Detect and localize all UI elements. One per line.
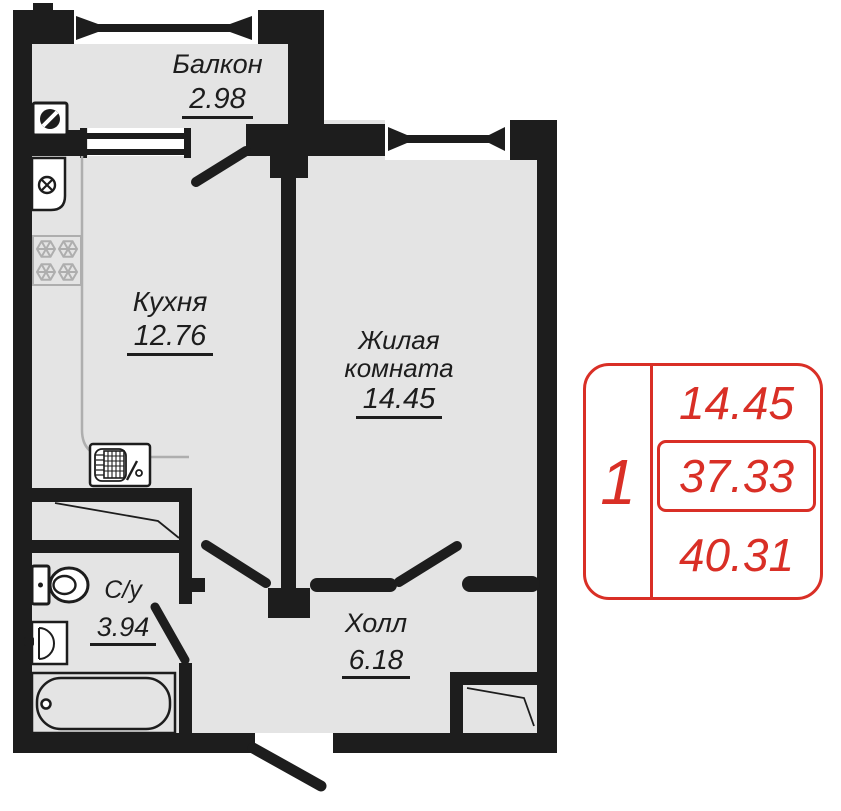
living-room-area-value: 14.45	[320, 384, 478, 419]
wall-balcony-top-left	[13, 10, 74, 44]
wall-kitchen-living-divider	[281, 176, 296, 592]
stamp-room-count: 1	[586, 366, 653, 597]
bathroom-area-value: 3.94	[84, 613, 162, 646]
living-room-area-text: 14.45	[356, 384, 443, 419]
kitchen-area-text: 12.76	[127, 321, 214, 356]
wall-right-outer	[537, 120, 557, 753]
hall-area-text: 6.18	[342, 645, 411, 679]
floor-plan-canvas: Балкон 2.98 Кухня 12.76 Жилая комната 14…	[0, 0, 841, 811]
washing-machine-icon	[33, 103, 67, 135]
wall-corner-closet-top	[450, 672, 537, 685]
wall-closet-bottom	[13, 540, 192, 553]
balcony-area-text: 2.98	[182, 84, 252, 119]
balcony-area-value: 2.98	[140, 84, 295, 119]
wall-bathroom-right-lower	[179, 663, 192, 737]
living-room-label: Жилая комната	[320, 327, 478, 382]
wall-divider-top-block	[270, 156, 308, 178]
bathroom-label: С/у	[92, 577, 154, 604]
entrance-door-icon	[253, 748, 321, 786]
kitchen-hob-sink-icon	[32, 158, 65, 210]
hall-label: Холл	[312, 609, 440, 638]
wall-closet-top	[13, 488, 192, 502]
wall-hall-top-right-seg	[462, 576, 540, 592]
area-stamp: 1 14.45 37.33 40.31	[583, 363, 823, 600]
stamp-total-area: 40.31	[653, 512, 820, 597]
stamp-areas: 14.45 37.33 40.31	[653, 366, 820, 597]
wall-bottom-right	[333, 733, 557, 753]
kitchen-sink-unit-icon	[90, 444, 150, 486]
wall-kitchen-door-stub	[192, 578, 205, 592]
kitchen-area-value: 12.76	[95, 321, 245, 356]
wall-top-left-bump	[33, 3, 53, 11]
wall-balcony-kitchen-right	[246, 124, 385, 156]
balcony-label: Балкон	[140, 50, 295, 79]
hall-area-value: 6.18	[312, 645, 440, 679]
wall-bottom-left	[13, 733, 255, 753]
stamp-area-without-balcony: 37.33	[657, 440, 816, 512]
stamp-living-area: 14.45	[653, 366, 820, 440]
kitchen-label: Кухня	[95, 287, 245, 317]
wall-divider-bottom-block	[268, 588, 310, 618]
wall-hall-top-left-seg	[310, 578, 397, 592]
toilet-icon	[32, 566, 88, 604]
wall-bathroom-right-upper	[179, 488, 192, 604]
bathroom-area-text: 3.94	[90, 613, 157, 646]
